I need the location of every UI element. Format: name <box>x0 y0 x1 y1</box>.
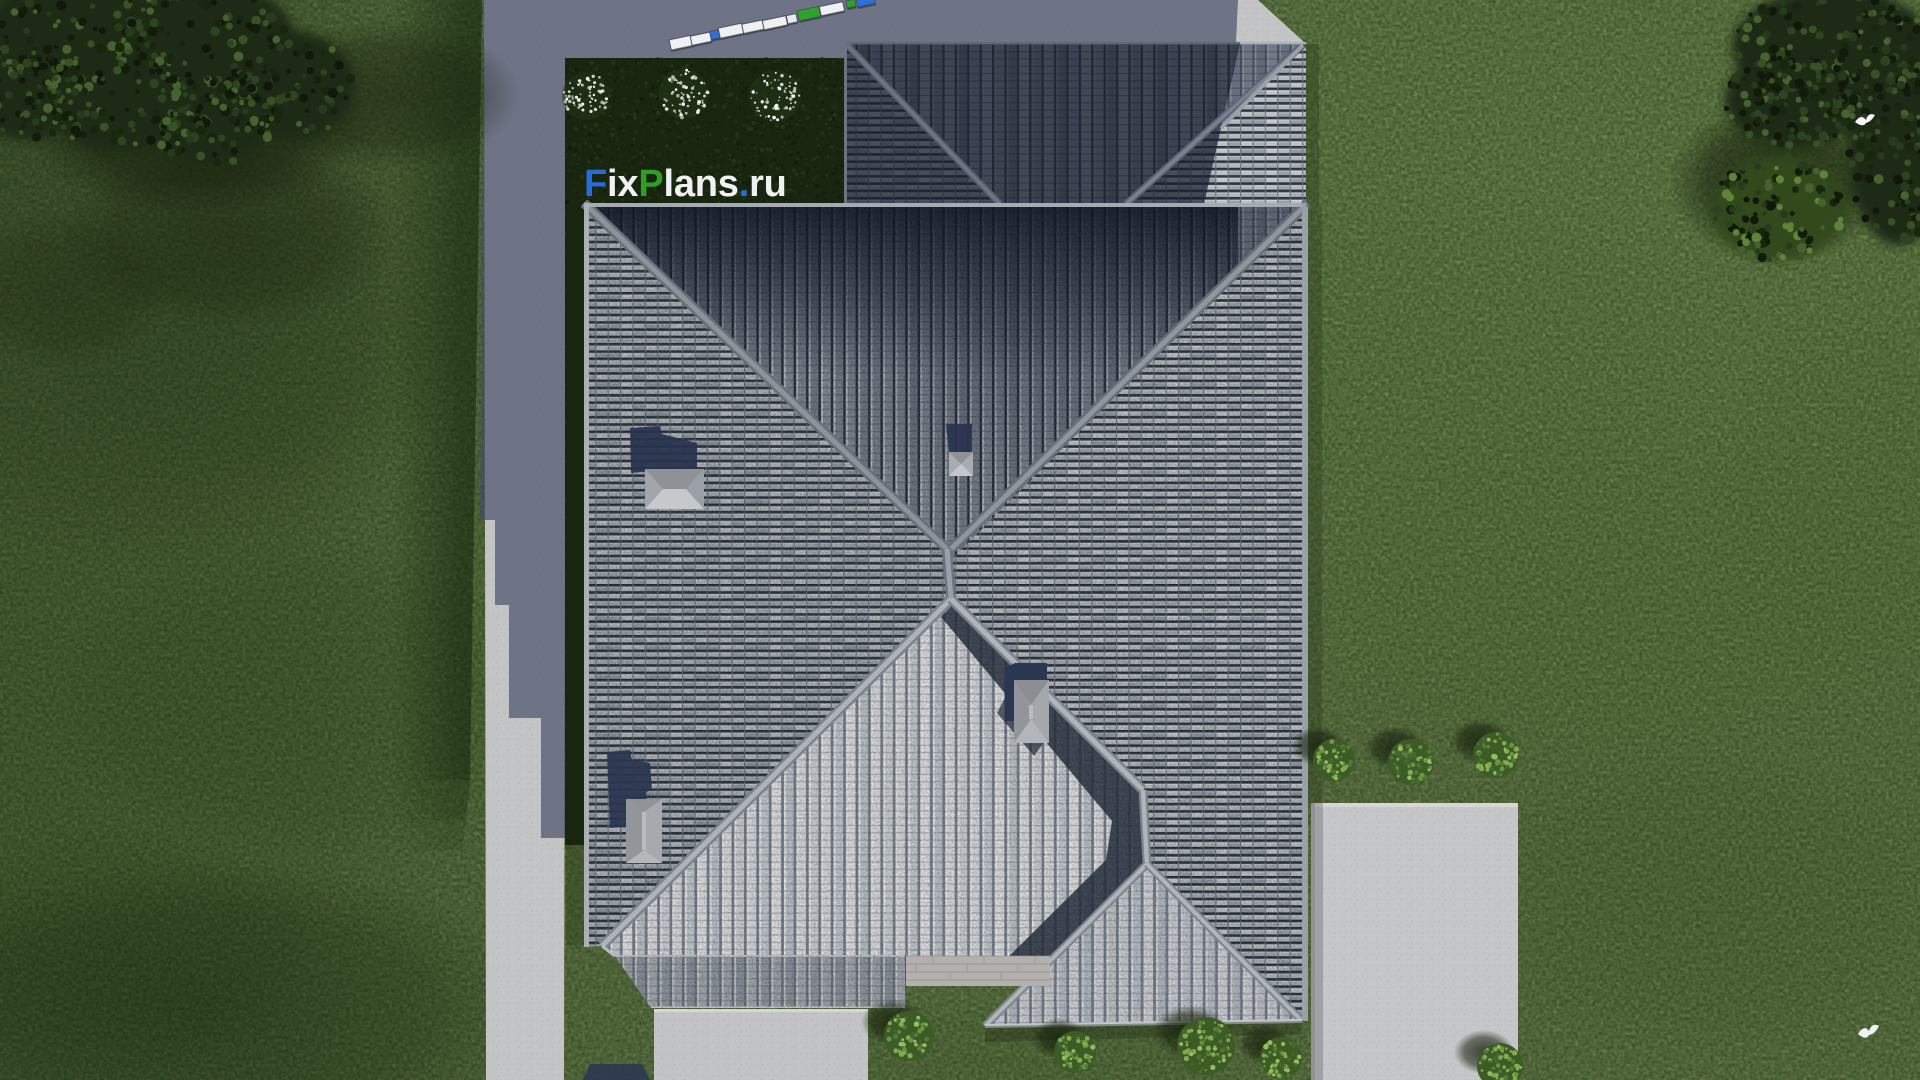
svg-text:FixPlans.ru: FixPlans.ru <box>584 163 787 205</box>
